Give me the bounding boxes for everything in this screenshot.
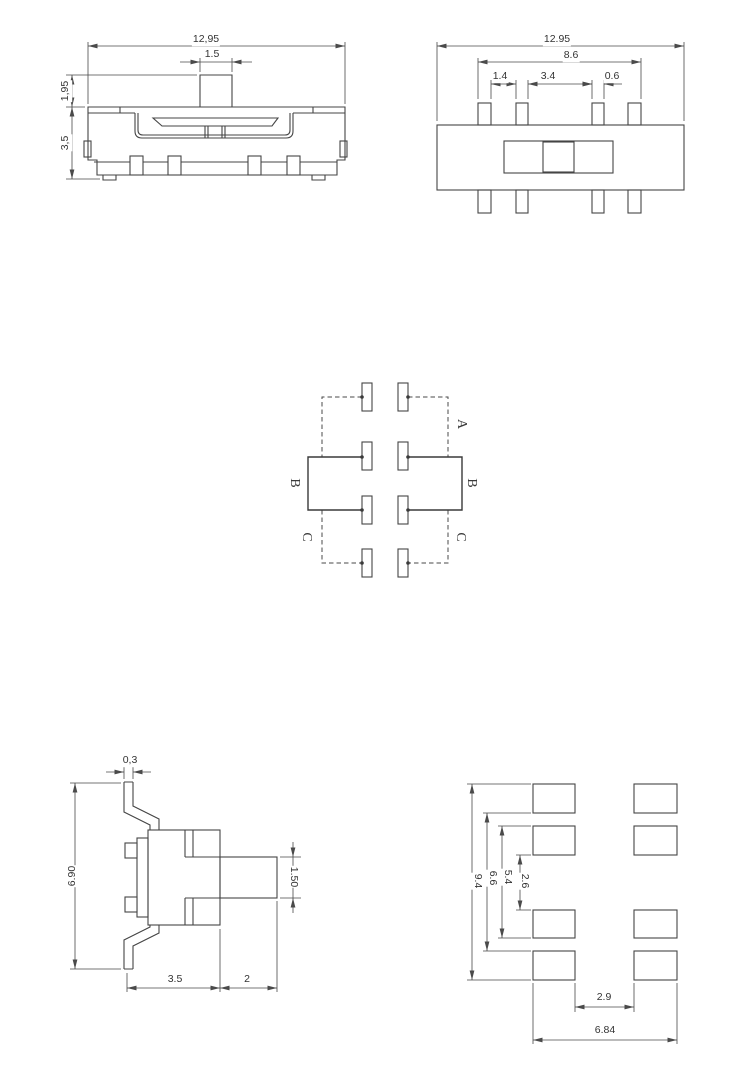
- dim-top-pin-gap-center: 3.4: [540, 71, 557, 83]
- dim-land-span-66: 6.6: [486, 870, 498, 887]
- schematic-pole-c-left: C: [299, 532, 313, 541]
- side-view-geometry: [124, 782, 277, 969]
- schematic-pole-a-right: A: [454, 419, 468, 429]
- dim-front-total-width: 12,95: [192, 34, 220, 46]
- side-view-dimensions: [70, 766, 301, 992]
- drawing-linework: [0, 0, 750, 1066]
- schematic-pole-b-left: B: [287, 478, 301, 487]
- schematic-pole-b-right: B: [464, 478, 478, 487]
- dim-top-pin-gap-outer: 1.4: [492, 71, 509, 83]
- dim-side-stem-length: 2: [243, 974, 251, 986]
- dim-top-pin-row-span: 8.6: [563, 50, 580, 62]
- top-view-dimensions: [437, 42, 684, 121]
- dim-land-overall-width: 6.84: [594, 1025, 616, 1037]
- dim-front-body-height: 3,5: [60, 135, 72, 152]
- schematic-wiring: [308, 383, 462, 577]
- dim-land-pad-gap-vertical: 2.6: [518, 873, 530, 890]
- dim-land-pad-gap-horizontal: 2.9: [596, 992, 613, 1004]
- front-view-geometry: [84, 75, 347, 180]
- dim-land-span-54: 5.4: [501, 869, 513, 886]
- dim-top-total-width: 12.95: [543, 34, 571, 46]
- front-view-dimensions: [66, 42, 345, 179]
- land-pattern-dimensions: [467, 784, 677, 1044]
- dim-land-overall-height: 9.4: [471, 873, 483, 890]
- top-view-geometry: [437, 103, 684, 213]
- dim-top-pin-width: 0.6: [604, 71, 621, 83]
- land-pattern-pads: [533, 784, 677, 980]
- schematic-junction-dots: [360, 395, 410, 565]
- dim-side-stem-height: 1.50: [287, 866, 299, 888]
- dim-side-overall-height: 6.90: [67, 865, 79, 887]
- dim-front-stem-width: 1.5: [204, 49, 221, 61]
- dim-side-body-depth: 3.5: [167, 974, 184, 986]
- dim-front-stem-height: 1,95: [60, 80, 72, 102]
- schematic-pole-c-right: C: [453, 532, 467, 541]
- dim-side-bracket-thickness: 0,3: [122, 755, 139, 767]
- drawing-sheet: 12,95 1.5 1,95 3,5 12.95 8.6 1.4 3.4 0.6…: [0, 0, 750, 1066]
